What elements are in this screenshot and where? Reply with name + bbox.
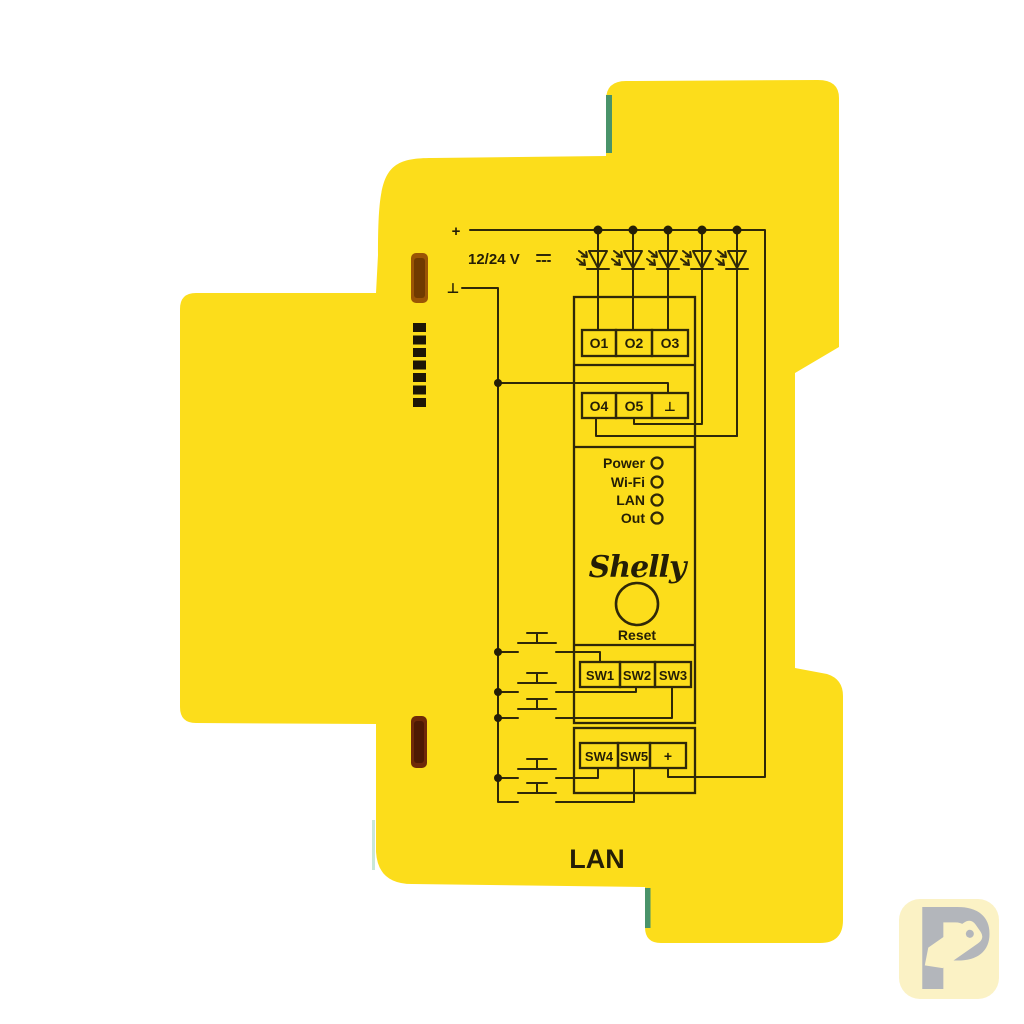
vent-hole [413,336,426,345]
terminal-label: O1 [590,335,609,351]
junction-dot [494,714,502,722]
ground-rail-label: ⊥ [447,281,460,297]
terminal-label: SW1 [586,668,614,683]
junction-dot [698,226,707,235]
junction-dot [733,226,742,235]
reset-label: Reset [618,627,656,643]
vent-holes [413,323,426,407]
plus-terminal-label: + [664,748,672,764]
terminal-label: SW4 [585,749,614,764]
brand-logo: Shelly [589,550,689,585]
junction-dot [494,774,502,782]
vent-hole [413,373,426,382]
junction-dot [664,226,673,235]
vent-slot-inner [414,258,425,298]
status-led-label: Out [621,510,645,526]
watermark-logo: P [899,886,999,1016]
terminal-label: SW2 [623,668,651,683]
vent-slot-inner [414,721,424,763]
status-led-label: Wi-Fi [611,474,645,490]
ground-terminal-label: ⊥ [664,400,676,415]
junction-dot [494,379,502,387]
terminal-label: SW5 [620,749,648,764]
vent-hole [413,386,426,395]
product-photo: O1 O2 O3 O4 O5 ⊥ SW1 SW2 SW3 SW4 [0,0,1024,1024]
edge-accent-bottom [645,888,651,928]
device-body [180,80,843,943]
terminal-label: O5 [625,398,644,414]
plus-rail-label: + [452,223,461,240]
terminal-label: O3 [661,335,680,351]
terminal-label: O2 [625,335,644,351]
junction-dot [494,648,502,656]
terminal-label: SW3 [659,668,687,683]
vent-hole [413,348,426,357]
vent-slot-bottom [411,716,427,768]
junction-dot [629,226,638,235]
junction-dot [594,226,603,235]
vent-slot-top [411,253,428,303]
vent-hole [413,323,426,332]
edge-accent-left [372,820,375,870]
lan-port-label: LAN [569,844,625,874]
device-photo-canvas: O1 O2 O3 O4 O5 ⊥ SW1 SW2 SW3 SW4 [0,0,1024,1024]
voltage-label: 12/24 V [468,251,520,268]
status-led-label: Power [603,455,646,471]
vent-hole [413,361,426,370]
vent-hole [413,398,426,407]
status-led-label: LAN [616,492,645,508]
junction-dot [494,688,502,696]
edge-accent-top [606,95,612,153]
terminal-label: O4 [590,398,609,414]
